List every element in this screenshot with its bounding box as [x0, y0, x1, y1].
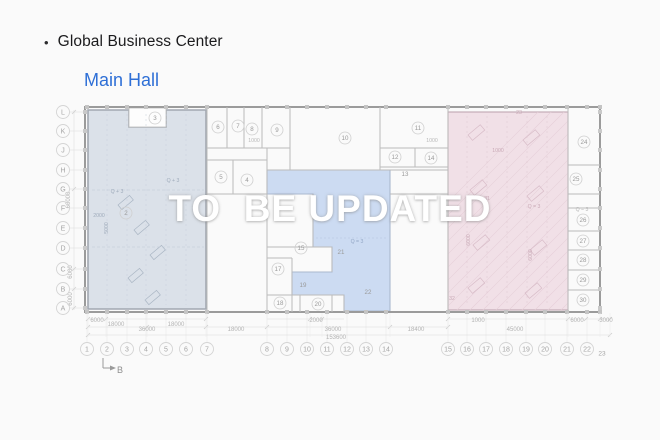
svg-text:2000: 2000: [93, 213, 105, 219]
svg-text:3: 3: [153, 115, 157, 122]
svg-text:1000: 1000: [492, 148, 504, 154]
svg-text:22: 22: [583, 346, 591, 353]
svg-text:Q + 3: Q + 3: [111, 189, 124, 195]
svg-text:1000: 1000: [471, 318, 485, 324]
svg-text:30: 30: [580, 297, 587, 304]
svg-text:2000: 2000: [309, 318, 323, 324]
svg-text:27: 27: [580, 238, 587, 245]
zones: [88, 108, 568, 311]
svg-text:D: D: [60, 245, 65, 252]
svg-text:4: 4: [144, 346, 148, 353]
svg-text:E: E: [61, 225, 66, 232]
svg-text:7: 7: [236, 123, 240, 130]
svg-text:10: 10: [303, 346, 311, 353]
svg-text:13: 13: [362, 346, 370, 353]
svg-text:9: 9: [285, 346, 289, 353]
svg-text:K: K: [61, 128, 66, 135]
svg-text:153600: 153600: [326, 335, 347, 341]
svg-text:6000: 6000: [466, 234, 472, 246]
svg-text:C: C: [60, 266, 65, 273]
svg-text:B: B: [61, 286, 66, 293]
zone-middle: [267, 170, 390, 311]
svg-text:18000: 18000: [228, 327, 245, 333]
svg-text:12: 12: [343, 346, 351, 353]
svg-text:29: 29: [580, 277, 587, 284]
svg-text:14: 14: [382, 346, 390, 353]
section-marker: B: [103, 358, 123, 375]
svg-text:25: 25: [573, 176, 580, 183]
grid-col-labels: 1234567891011121314151617181920212223: [81, 343, 606, 358]
svg-text:15: 15: [444, 346, 452, 353]
svg-text:36000: 36000: [325, 327, 342, 333]
svg-text:10: 10: [342, 135, 349, 142]
svg-text:H: H: [60, 167, 65, 174]
svg-text:2: 2: [105, 346, 109, 353]
svg-text:Q = 3: Q = 3: [528, 204, 541, 210]
svg-text:3000: 3000: [599, 318, 613, 324]
svg-text:L: L: [61, 109, 65, 116]
svg-text:19: 19: [300, 282, 307, 289]
svg-text:18000: 18000: [108, 322, 125, 328]
svg-text:26: 26: [580, 217, 587, 224]
svg-text:Q = 3: Q = 3: [351, 239, 364, 245]
svg-text:20: 20: [541, 346, 549, 353]
svg-text:20: 20: [315, 301, 322, 308]
svg-text:5000: 5000: [104, 222, 110, 234]
svg-text:14: 14: [428, 155, 435, 162]
svg-text:1000: 1000: [426, 138, 438, 144]
grid-row-labels: LKJHGFEDCBA: [57, 106, 70, 315]
svg-text:1: 1: [85, 346, 89, 353]
svg-text:19: 19: [522, 346, 530, 353]
svg-text:Q + 3: Q + 3: [167, 178, 180, 184]
svg-text:17: 17: [482, 346, 490, 353]
svg-text:23: 23: [516, 110, 522, 116]
svg-text:16: 16: [463, 346, 471, 353]
svg-text:13: 13: [402, 171, 409, 178]
svg-text:18: 18: [502, 346, 510, 353]
svg-text:2: 2: [124, 210, 128, 217]
svg-text:9: 9: [275, 127, 279, 134]
svg-text:22: 22: [365, 289, 372, 296]
svg-text:5: 5: [219, 174, 223, 181]
svg-text:6000: 6000: [68, 292, 74, 306]
svg-text:G: G: [60, 186, 65, 193]
svg-text:6: 6: [184, 346, 188, 353]
svg-text:Q = 3: Q = 3: [576, 207, 589, 213]
svg-text:B: B: [117, 365, 123, 375]
svg-text:7: 7: [205, 346, 209, 353]
svg-text:11: 11: [415, 125, 422, 132]
svg-text:6: 6: [216, 124, 220, 131]
svg-text:F: F: [61, 205, 65, 212]
svg-text:36000: 36000: [139, 327, 156, 333]
svg-text:4: 4: [245, 177, 249, 184]
svg-text:18400: 18400: [408, 327, 425, 333]
svg-text:45000: 45000: [507, 327, 524, 333]
svg-text:12: 12: [392, 154, 399, 161]
svg-text:3: 3: [125, 346, 129, 353]
svg-text:A: A: [61, 305, 66, 312]
svg-text:18: 18: [277, 300, 284, 307]
svg-text:21: 21: [338, 249, 345, 256]
svg-text:J: J: [61, 147, 65, 154]
svg-text:24: 24: [581, 139, 588, 146]
svg-text:8: 8: [265, 346, 269, 353]
svg-text:18000: 18000: [168, 322, 185, 328]
floor-plan-canvas: 6000180001800036000180002000360001840010…: [0, 0, 660, 440]
svg-text:28: 28: [580, 257, 587, 264]
svg-text:31: 31: [484, 196, 490, 202]
svg-text:8: 8: [250, 126, 254, 133]
svg-text:11: 11: [323, 346, 330, 353]
zone-left: [88, 110, 206, 309]
svg-text:21: 21: [563, 346, 571, 353]
svg-text:5: 5: [164, 346, 168, 353]
svg-text:6000: 6000: [570, 318, 584, 324]
floor-plan-viewer: • Global Business Center Main Hall 60001…: [0, 0, 660, 440]
svg-text:1000: 1000: [248, 138, 260, 144]
svg-text:17: 17: [275, 266, 282, 273]
svg-text:6000: 6000: [90, 318, 104, 324]
svg-text:15: 15: [298, 245, 305, 252]
svg-text:23: 23: [598, 350, 606, 357]
svg-text:6000: 6000: [528, 249, 534, 261]
svg-text:32: 32: [449, 296, 455, 302]
